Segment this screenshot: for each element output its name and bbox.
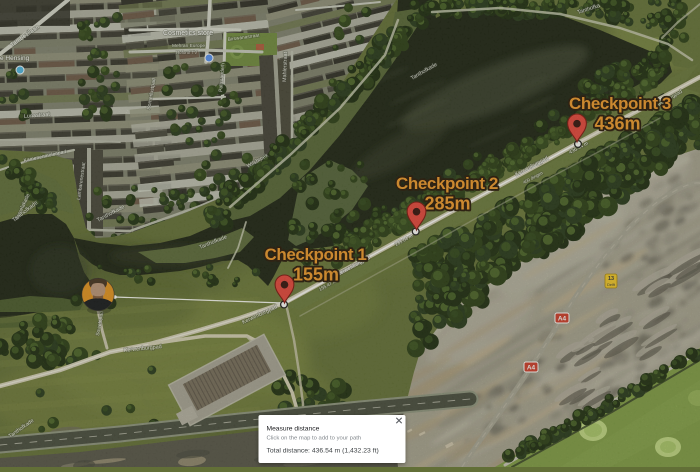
svg-text:Measure distance: Measure distance (267, 426, 320, 433)
svg-text:Click on the map to add to you: Click on the map to add to your path (267, 435, 362, 441)
svg-text:Total distance: 436.54 m (1,43: Total distance: 436.54 m (1,432.23 ft) (267, 447, 379, 454)
